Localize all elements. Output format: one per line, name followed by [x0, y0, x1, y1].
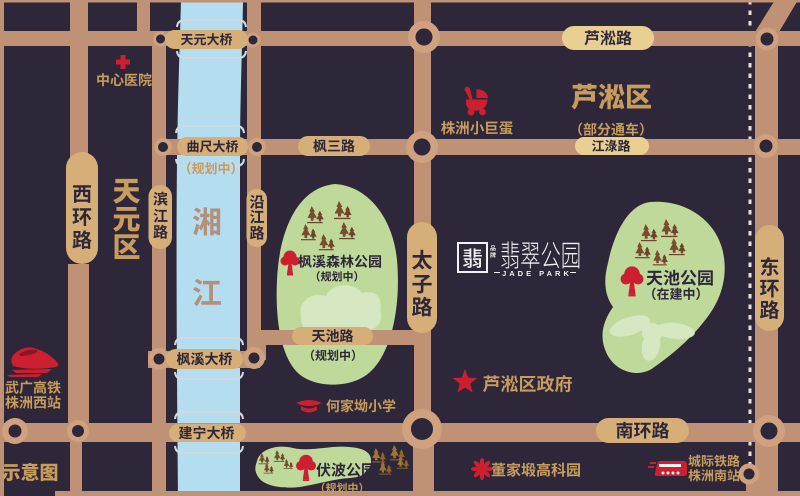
svg-text:JADE PARK: JADE PARK: [502, 269, 572, 278]
